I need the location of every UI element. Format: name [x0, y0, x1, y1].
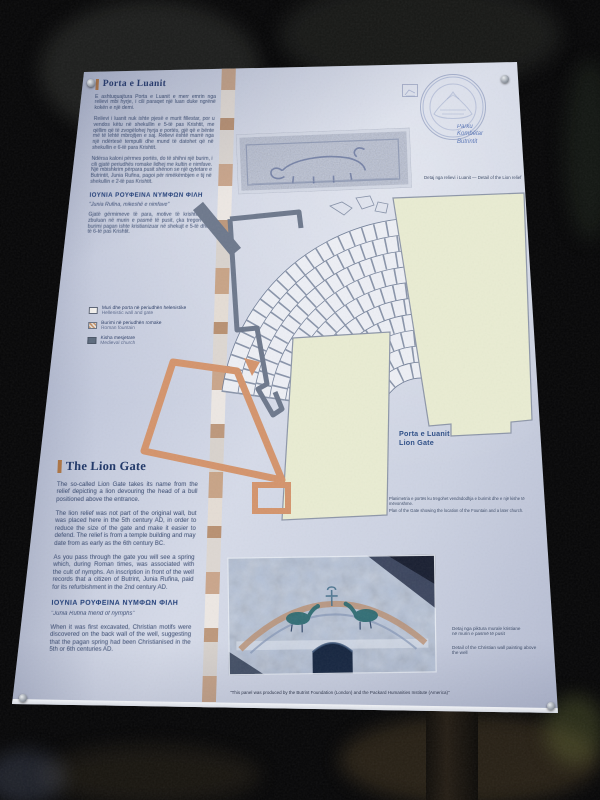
bolt-bottom-right	[547, 702, 555, 710]
sign-support-post	[426, 705, 478, 800]
leaf-litter-bottom-left	[40, 745, 260, 800]
bolt-bottom-left	[19, 694, 27, 702]
lighting-shade-left	[0, 0, 600, 800]
information-panel: Porta e Luanit E ashtuquajtura Porta e L…	[0, 0, 600, 800]
foliage-right-edge	[565, 60, 600, 240]
light-streak-bottom-left	[0, 750, 65, 800]
bolt-top-right	[501, 75, 509, 83]
bolt-top-left	[87, 79, 95, 87]
photo-of-information-sign: { "panel": { "albanian_section": { "titl…	[0, 0, 600, 800]
